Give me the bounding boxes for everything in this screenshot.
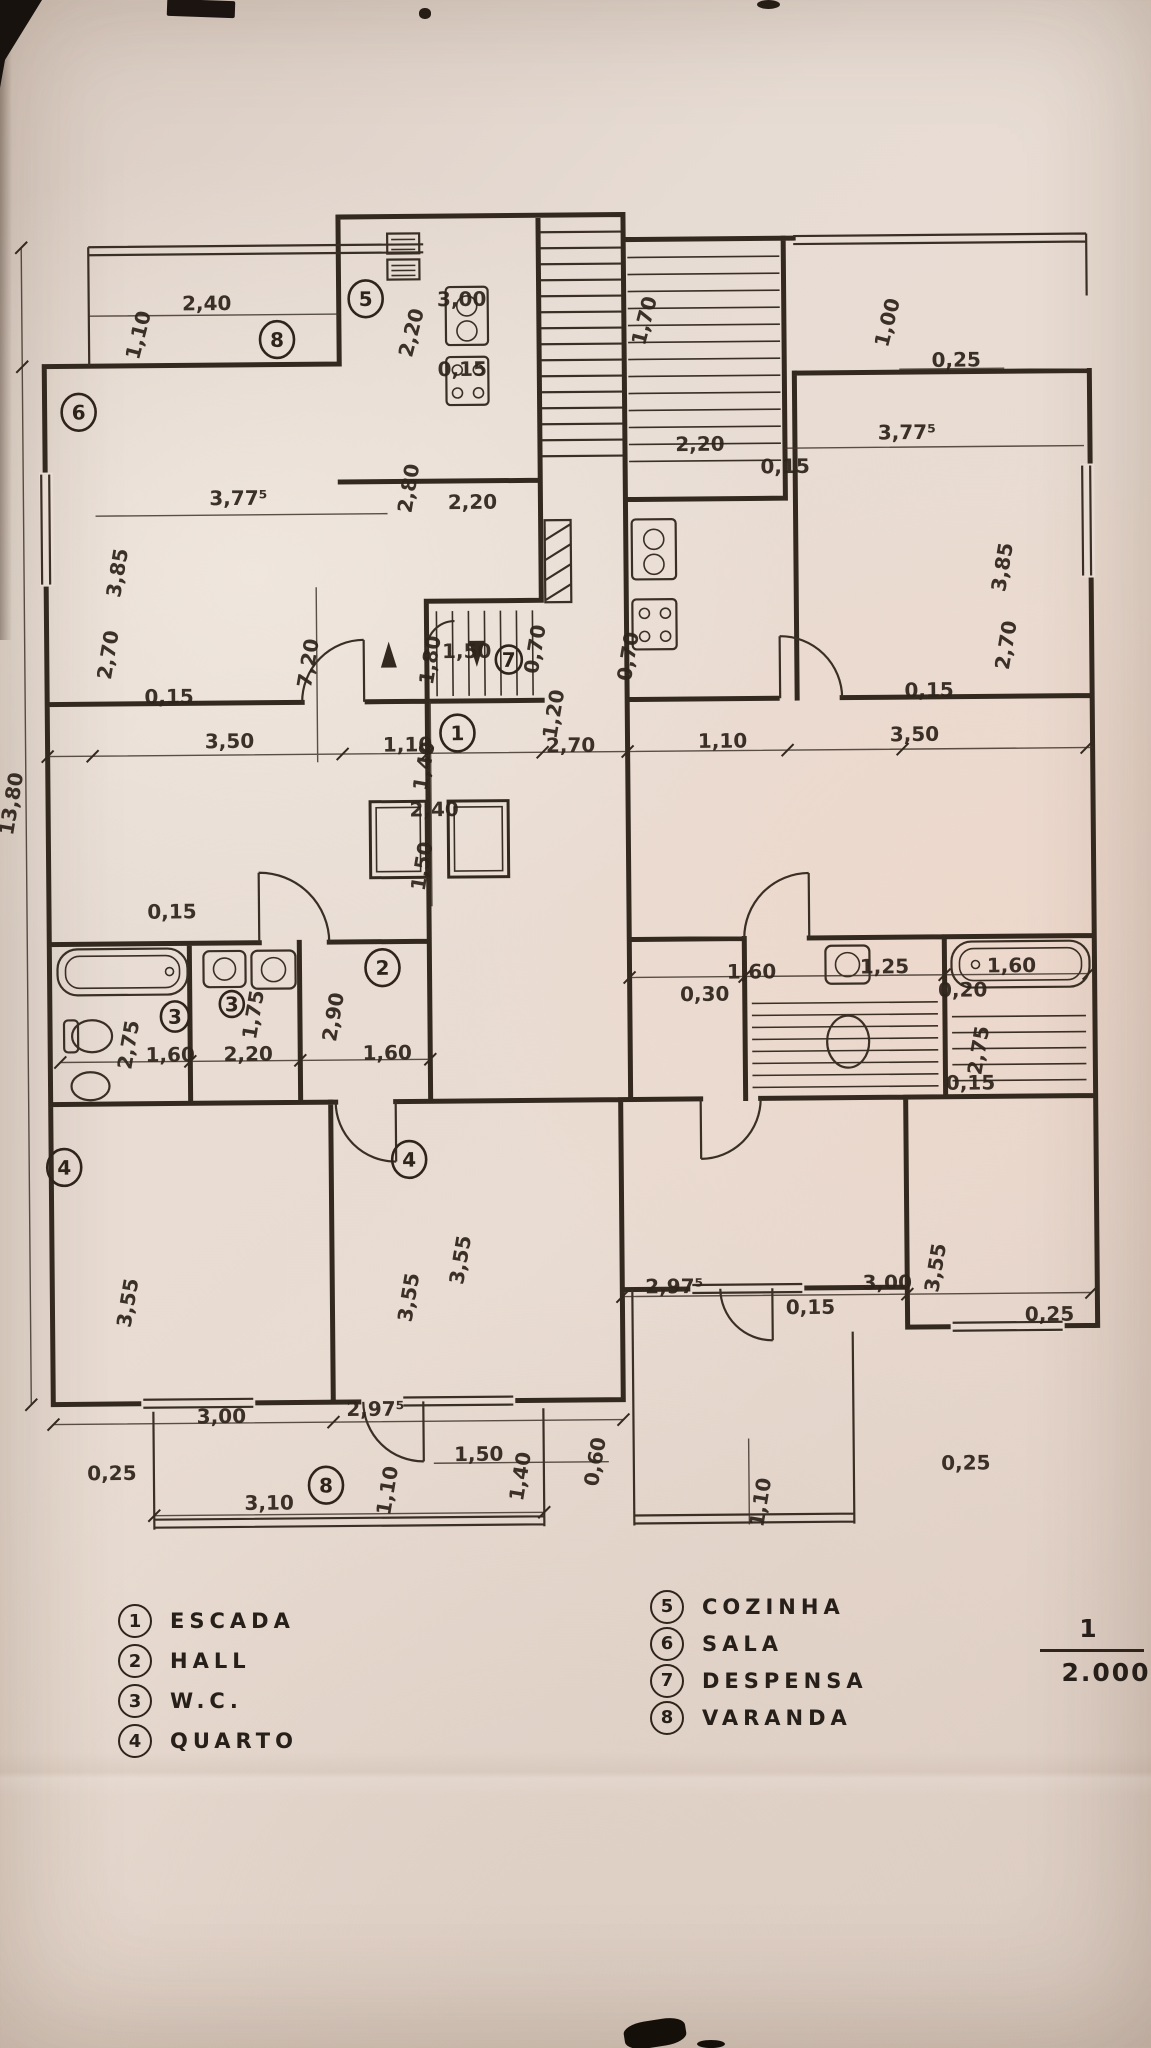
tile-hatch bbox=[752, 1001, 1087, 1088]
dimension-label: 1,40 bbox=[504, 1450, 536, 1503]
dimension-label: 3,00 bbox=[862, 1270, 912, 1294]
dimension-label: 0,15 bbox=[147, 899, 197, 923]
svg-text:4: 4 bbox=[402, 1148, 416, 1172]
svg-text:2: 2 bbox=[375, 956, 389, 980]
svg-text:4: 4 bbox=[57, 1156, 71, 1180]
drawing-scale: 1 2.000 bbox=[1032, 1614, 1151, 1687]
dimension-label: 3,55 bbox=[112, 1276, 144, 1329]
legend-label: SALA bbox=[702, 1632, 783, 1656]
dimension-label: 2,20 bbox=[393, 306, 429, 360]
dimension-label: 1,70 bbox=[626, 294, 662, 348]
service-stair-steps bbox=[627, 256, 781, 461]
dimension-label: 0,15 bbox=[437, 357, 487, 381]
dimension-label: 2,70 bbox=[92, 629, 124, 682]
legend-item-hall: 2 HALL bbox=[118, 1641, 298, 1681]
dimension-label: 3,10 bbox=[244, 1490, 294, 1514]
dimension-label: 3,85 bbox=[986, 541, 1018, 594]
dimension-label: 1,10 bbox=[698, 728, 748, 752]
dimension-label: 2,75 bbox=[112, 1018, 144, 1071]
central-stair-steps bbox=[540, 232, 623, 457]
legend-number: 7 bbox=[650, 1664, 684, 1698]
dimension-label: 0,15 bbox=[786, 1295, 836, 1319]
sink-basin bbox=[835, 953, 859, 977]
room-number-marker: 6 bbox=[61, 394, 95, 431]
dimension-label: 0,15 bbox=[144, 684, 194, 708]
toilet bbox=[827, 1015, 869, 1067]
kitchen-appliance bbox=[387, 259, 419, 279]
exterior-walls bbox=[43, 210, 1098, 1404]
svg-text:7: 7 bbox=[502, 648, 516, 672]
legend-number: 2 bbox=[118, 1644, 152, 1678]
legend-item-sala: 6 SALA bbox=[650, 1625, 868, 1662]
dimension-label: 2,20 bbox=[223, 1042, 273, 1066]
dimension-label: 1,00 bbox=[869, 296, 905, 350]
dimension-label: 2,40 bbox=[409, 797, 459, 821]
legend-item-despensa: 7 DESPENSA bbox=[650, 1662, 868, 1699]
stair-up-arrow bbox=[381, 642, 397, 668]
legend-number: 1 bbox=[118, 1604, 152, 1638]
dimension-label: 3,85 bbox=[101, 546, 133, 599]
legend-number: 5 bbox=[650, 1590, 684, 1624]
dimension-label: 2,90 bbox=[317, 991, 349, 1044]
dimension-label: 0,70 bbox=[612, 630, 644, 683]
legend-right: 5 COZINHA 6 SALA 7 DESPENSA 8 VARANDA bbox=[650, 1588, 868, 1736]
balcony-edges bbox=[88, 234, 1097, 1531]
legend-item-varanda: 8 VARANDA bbox=[650, 1699, 868, 1736]
dimension-label: 3,00 bbox=[437, 287, 487, 311]
scale-fraction-line bbox=[1040, 1649, 1144, 1652]
dimension-label: 1,60 bbox=[362, 1040, 412, 1064]
sink bbox=[203, 951, 245, 987]
svg-text:6: 6 bbox=[72, 400, 86, 424]
dimension-label: 2,20 bbox=[675, 432, 725, 456]
dimension-label: 1,50 bbox=[406, 840, 438, 893]
elevator-shaft-inner bbox=[454, 807, 503, 871]
legend-label: VARANDA bbox=[702, 1706, 852, 1730]
legend-item-escada: 1 ESCADA bbox=[118, 1601, 298, 1641]
dimension-label: 1,10 bbox=[371, 1464, 403, 1517]
scale-numerator: 1 bbox=[1032, 1614, 1151, 1643]
dimension-label: 0,20 bbox=[938, 977, 988, 1001]
dimension-label: 0,60 bbox=[579, 1435, 611, 1488]
dimension-label: 3,77⁵ bbox=[209, 486, 267, 511]
svg-text:8: 8 bbox=[270, 328, 284, 352]
wall-hatch bbox=[545, 524, 572, 600]
room-number-marker: 1 bbox=[440, 715, 474, 752]
legend-label: W.C. bbox=[170, 1689, 243, 1713]
legend-left: 1 ESCADA 2 HALL 3 W.C. 4 QUARTO bbox=[118, 1601, 298, 1761]
dimension-label: 0,25 bbox=[87, 1461, 137, 1485]
room-number-marker: 3 bbox=[220, 991, 244, 1017]
legend-item-wc: 3 W.C. bbox=[118, 1681, 298, 1721]
dimension-label: 3,00 bbox=[197, 1404, 247, 1428]
dimension-label: 1,25 bbox=[860, 954, 910, 978]
legend-number: 8 bbox=[650, 1701, 684, 1735]
legend-label: QUARTO bbox=[170, 1729, 298, 1753]
legend-item-cozinha: 5 COZINHA bbox=[650, 1588, 868, 1625]
legend-number: 6 bbox=[650, 1627, 684, 1661]
legend-label: DESPENSA bbox=[702, 1669, 868, 1693]
dimension-label: 1,50 bbox=[454, 1442, 504, 1466]
dimension-label: 2,20 bbox=[448, 490, 498, 514]
dimension-label: 1,50 bbox=[442, 639, 492, 663]
dimension-label: 2,97⁵ bbox=[645, 1274, 703, 1299]
dimension-label: 3,50 bbox=[205, 729, 255, 753]
dimension-label: 1,60 bbox=[727, 959, 777, 983]
legend-number: 3 bbox=[118, 1684, 152, 1718]
dimension-label: 0,70 bbox=[519, 623, 551, 676]
sink-basin bbox=[261, 958, 285, 982]
legend-number: 4 bbox=[118, 1724, 152, 1758]
room-number-marker: 8 bbox=[260, 321, 294, 358]
bathtub-drain bbox=[165, 968, 173, 976]
scale-denominator: 2.000 bbox=[1032, 1658, 1151, 1687]
dimension-label: 2,80 bbox=[393, 462, 425, 515]
svg-text:3: 3 bbox=[225, 992, 239, 1016]
bathtub-inner bbox=[65, 955, 179, 988]
dimension-label: 13,80 bbox=[0, 771, 28, 837]
dimension-lines bbox=[15, 232, 1099, 1530]
svg-text:1: 1 bbox=[450, 721, 464, 745]
legend-label: HALL bbox=[170, 1649, 251, 1673]
room-number-marker: 2 bbox=[365, 949, 399, 986]
dimension-label: 3,55 bbox=[919, 1241, 951, 1294]
legend-item-quarto: 4 QUARTO bbox=[118, 1721, 298, 1761]
sink-basin bbox=[213, 958, 235, 980]
dimension-label: 0,25 bbox=[941, 1450, 991, 1474]
legend-label: ESCADA bbox=[170, 1609, 295, 1633]
dimension-label: 0,25 bbox=[931, 347, 981, 371]
svg-text:3: 3 bbox=[168, 1005, 182, 1029]
dimension-label: 3,50 bbox=[890, 722, 940, 746]
dimension-label: 2,97⁵ bbox=[346, 1397, 404, 1422]
dimension-label: 1,60 bbox=[145, 1042, 195, 1066]
bathtub-drain bbox=[971, 960, 979, 968]
dimension-label: 0,15 bbox=[904, 678, 954, 702]
dimension-label: 2,70 bbox=[990, 619, 1022, 672]
svg-text:8: 8 bbox=[319, 1473, 333, 1497]
room-number-marker: 8 bbox=[309, 1467, 343, 1504]
dimension-label: 1,60 bbox=[987, 953, 1037, 977]
dimension-label: 0,15 bbox=[760, 454, 810, 478]
dimension-label: 7,20 bbox=[292, 637, 324, 690]
room-number-marker: 7 bbox=[496, 645, 522, 673]
bidet bbox=[71, 1072, 109, 1100]
dimension-label: 2,40 bbox=[182, 291, 232, 315]
dimension-label: 0,15 bbox=[946, 1070, 996, 1094]
dimension-label: 0,30 bbox=[680, 982, 730, 1006]
room-number-marker: 3 bbox=[161, 1001, 189, 1031]
dimension-label: 3,77⁵ bbox=[878, 420, 936, 445]
dimension-label: 1,80 bbox=[414, 634, 446, 687]
sink bbox=[251, 950, 295, 988]
room-number-marker: 5 bbox=[349, 280, 383, 317]
dimension-label: 0,25 bbox=[1025, 1302, 1075, 1326]
legend-label: COZINHA bbox=[702, 1595, 845, 1619]
dimension-label: 3,55 bbox=[444, 1233, 476, 1286]
svg-text:5: 5 bbox=[359, 287, 373, 311]
dimension-label: 3,55 bbox=[393, 1271, 425, 1324]
